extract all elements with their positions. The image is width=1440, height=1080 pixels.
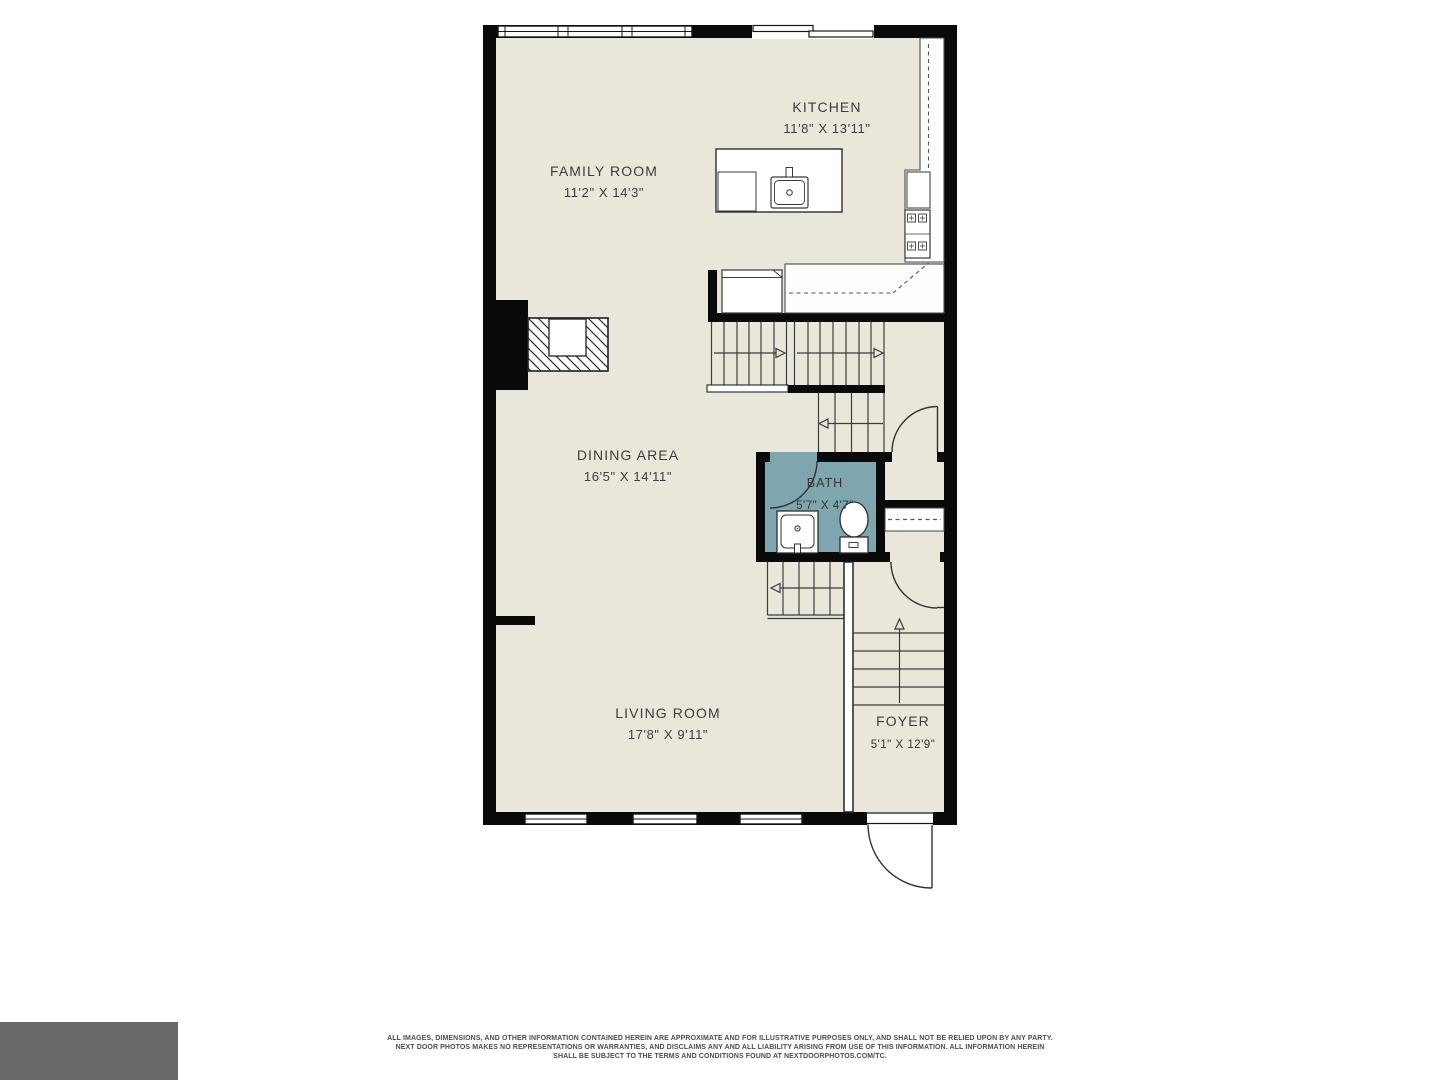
foyer-partition-wall <box>844 562 853 812</box>
door-swing-arc <box>868 825 932 889</box>
wall-oven-icon <box>907 172 930 208</box>
hall-door-gap <box>892 452 937 462</box>
closet-rod <box>885 508 944 531</box>
window-bottom-1 <box>525 814 587 824</box>
window-bottom-2 <box>633 814 697 824</box>
counter-bottom <box>785 264 944 313</box>
window-bottom-3 <box>740 814 802 824</box>
kitchen-island <box>716 149 842 212</box>
fireplace-chase <box>483 300 528 390</box>
stair-landing <box>707 385 788 392</box>
dishwasher-icon <box>718 172 756 211</box>
brightmls-logo: bright ™ MLS <box>0 1022 178 1080</box>
fireplace-icon <box>528 318 608 371</box>
sliding-door <box>752 24 874 39</box>
room-label-family-room: FAMILY ROOM <box>550 163 658 179</box>
wall-stub <box>483 616 535 625</box>
room-label-foyer: FOYER <box>876 713 930 729</box>
page: KITCHEN 11'8" X 13'11" FAMILY ROOM 11'2"… <box>0 0 1440 1080</box>
disclaimer-line-2: NEXT DOOR PHOTOS MAKES NO REPRESENTATION… <box>370 1043 1070 1052</box>
sink-icon <box>777 511 818 553</box>
bath-door-gap <box>770 452 817 462</box>
room-dim-dining-area: 16'5" X 14'11" <box>584 469 672 484</box>
stove-icon <box>905 210 930 258</box>
room-label-bath: BATH <box>807 476 843 490</box>
disclaimer-line-1: ALL IMAGES, DIMENSIONS, AND OTHER INFORM… <box>370 1034 1070 1043</box>
disclaimer: ALL IMAGES, DIMENSIONS, AND OTHER INFORM… <box>370 1034 1070 1062</box>
room-label-kitchen: KITCHEN <box>792 99 861 115</box>
room-dim-bath: 5'7" X 4'7" <box>796 500 854 512</box>
room-label-dining-area: DINING AREA <box>577 447 679 463</box>
windows-bottom <box>525 814 802 824</box>
room-label-living-room: LIVING ROOM <box>615 705 720 721</box>
closet-door-gap <box>890 552 940 562</box>
room-dim-kitchen: 11'8" X 13'11" <box>783 121 870 136</box>
floor-plan: KITCHEN 11'8" X 13'11" FAMILY ROOM 11'2"… <box>0 0 1440 1080</box>
room-dim-living-room: 17'8" X 9'11" <box>628 727 708 742</box>
refrigerator-icon <box>722 270 782 313</box>
front-door <box>867 812 933 888</box>
window-top <box>498 26 692 37</box>
disclaimer-line-3: SHALL BE SUBJECT TO THE TERMS AND CONDIT… <box>370 1052 1070 1061</box>
room-dim-family-room: 11'2" X 14'3" <box>564 185 644 200</box>
room-dim-foyer: 5'1" X 12'9" <box>871 739 936 751</box>
